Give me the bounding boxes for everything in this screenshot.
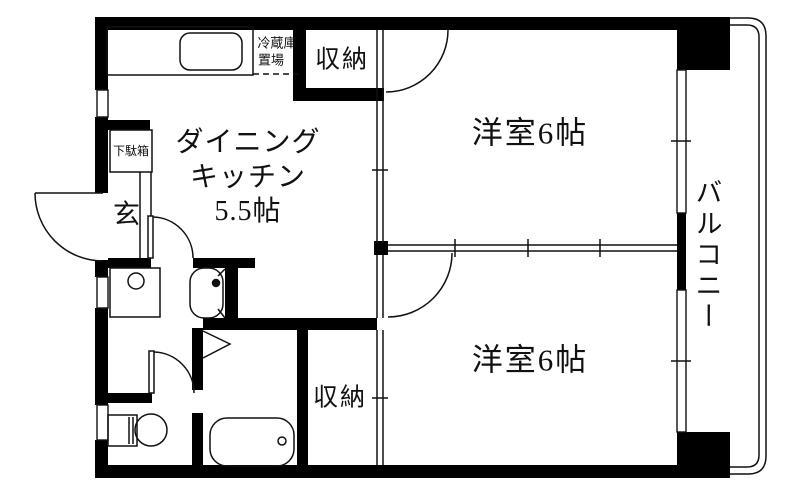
dining-kitchen-label-line1: ダイニング <box>175 129 320 157</box>
upper-room-door-icon <box>386 30 448 92</box>
lower-room-door-icon <box>388 253 452 317</box>
thin-partitions <box>140 30 677 465</box>
western-room-upper-label: 洋室6帖 <box>472 118 589 149</box>
dining-kitchen-label-line2: キッチン <box>190 164 306 192</box>
floorplan-drawing <box>0 0 800 498</box>
bathtub-icon <box>210 418 294 466</box>
refrigerator-space-label-line2: 置場 <box>258 54 284 67</box>
balcony-railing <box>730 18 766 474</box>
window-lower-room-icon <box>671 290 691 432</box>
western-room-lower-label: 洋室6帖 <box>472 345 589 376</box>
shoe-cabinet-label: 下駄箱 <box>113 145 149 157</box>
kitchen-counter-icon <box>107 27 253 75</box>
washing-machine-icon <box>190 268 225 318</box>
closet-upper-label: 収納 <box>315 48 369 73</box>
floorplan-canvas: ダイニング キッチン 5.5帖 洋室6帖 洋室6帖 収納 収納 冷蔵庫 置場 下… <box>0 0 800 498</box>
toilet-icon <box>108 414 167 446</box>
dining-kitchen-size-label: 5.5帖 <box>214 198 281 226</box>
entry-door-icon <box>35 193 103 261</box>
window-upper-room-icon <box>671 70 691 213</box>
refrigerator-space-label-line1: 冷蔵庫 <box>257 37 296 50</box>
washbasin-icon <box>110 268 160 317</box>
closet-lower-label: 収納 <box>313 386 367 411</box>
balcony-label: バルコニー <box>693 178 720 333</box>
toilet-door-icon <box>149 351 194 393</box>
entrance-label: 玄 <box>113 202 141 229</box>
windows <box>97 70 691 440</box>
bathroom-door-icon <box>203 331 230 358</box>
washroom-door-icon <box>148 216 193 258</box>
